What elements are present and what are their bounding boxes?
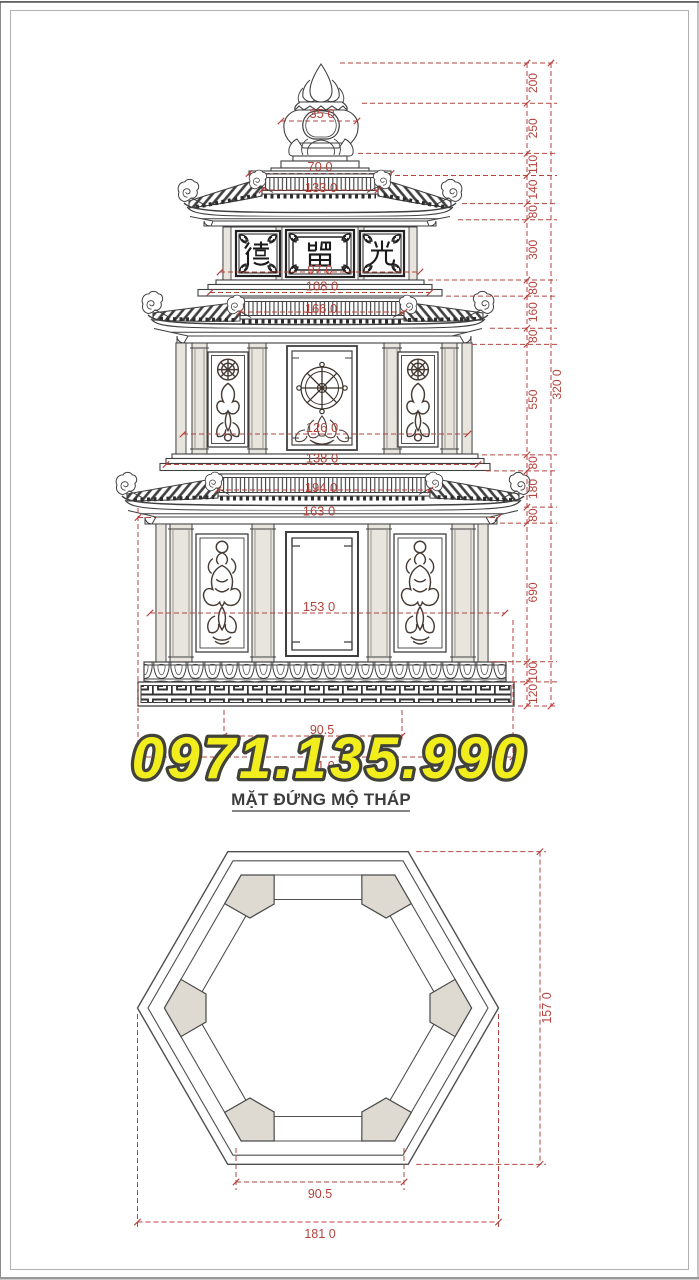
svg-text:80: 80 [526,281,540,295]
svg-text:80: 80 [526,508,540,522]
svg-text:250: 250 [526,118,540,138]
svg-text:181 0: 181 0 [304,1227,335,1241]
svg-text:100: 100 [526,662,540,682]
svg-text:550: 550 [526,389,540,409]
svg-text:133 0: 133 0 [305,180,338,195]
svg-text:90.5: 90.5 [308,1187,332,1201]
svg-text:690: 690 [526,582,540,602]
svg-text:80: 80 [526,456,540,470]
svg-text:80: 80 [526,205,540,219]
svg-text:126 0: 126 0 [306,420,339,435]
svg-text:0971.135.990: 0971.135.990 [132,726,529,791]
svg-text:MẶT ĐỨNG MỘ THÁP: MẶT ĐỨNG MỘ THÁP [231,790,411,809]
svg-text:120: 120 [526,684,540,704]
svg-text:320 0: 320 0 [550,369,564,399]
svg-text:300: 300 [526,240,540,260]
svg-text:163 0: 163 0 [303,504,336,519]
svg-text:80: 80 [526,329,540,343]
svg-text:180: 180 [526,479,540,499]
svg-text:108 0: 108 0 [306,279,339,294]
svg-text:138 0: 138 0 [306,451,339,466]
svg-text:200: 200 [526,73,540,93]
svg-text:110: 110 [526,155,540,174]
svg-text:166 0: 166 0 [305,301,338,316]
svg-text:140: 140 [526,179,540,199]
svg-text:153 0: 153 0 [303,599,336,614]
svg-text:194 0: 194 0 [305,480,338,495]
svg-text:35 0: 35 0 [309,106,334,121]
svg-text:70 0: 70 0 [307,159,332,174]
svg-text:97 0: 97 0 [307,262,332,277]
svg-text:157 0: 157 0 [540,992,554,1023]
svg-text:160: 160 [526,302,540,322]
